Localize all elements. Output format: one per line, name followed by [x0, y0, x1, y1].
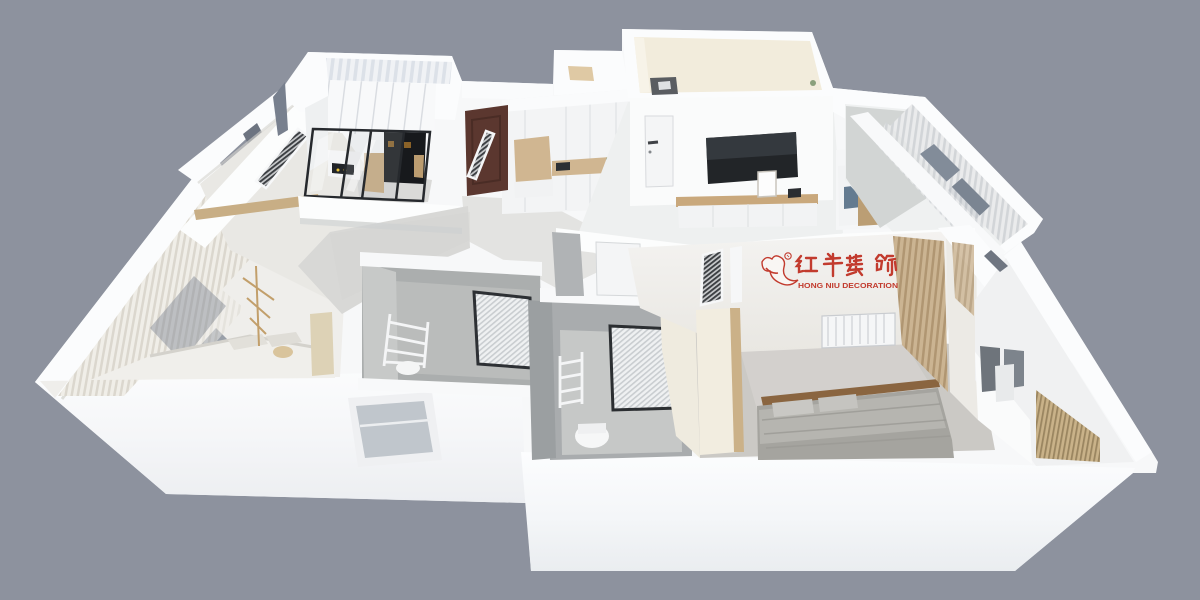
svg-text:HONG NIU DECORATION: HONG NIU DECORATION — [798, 283, 898, 290]
